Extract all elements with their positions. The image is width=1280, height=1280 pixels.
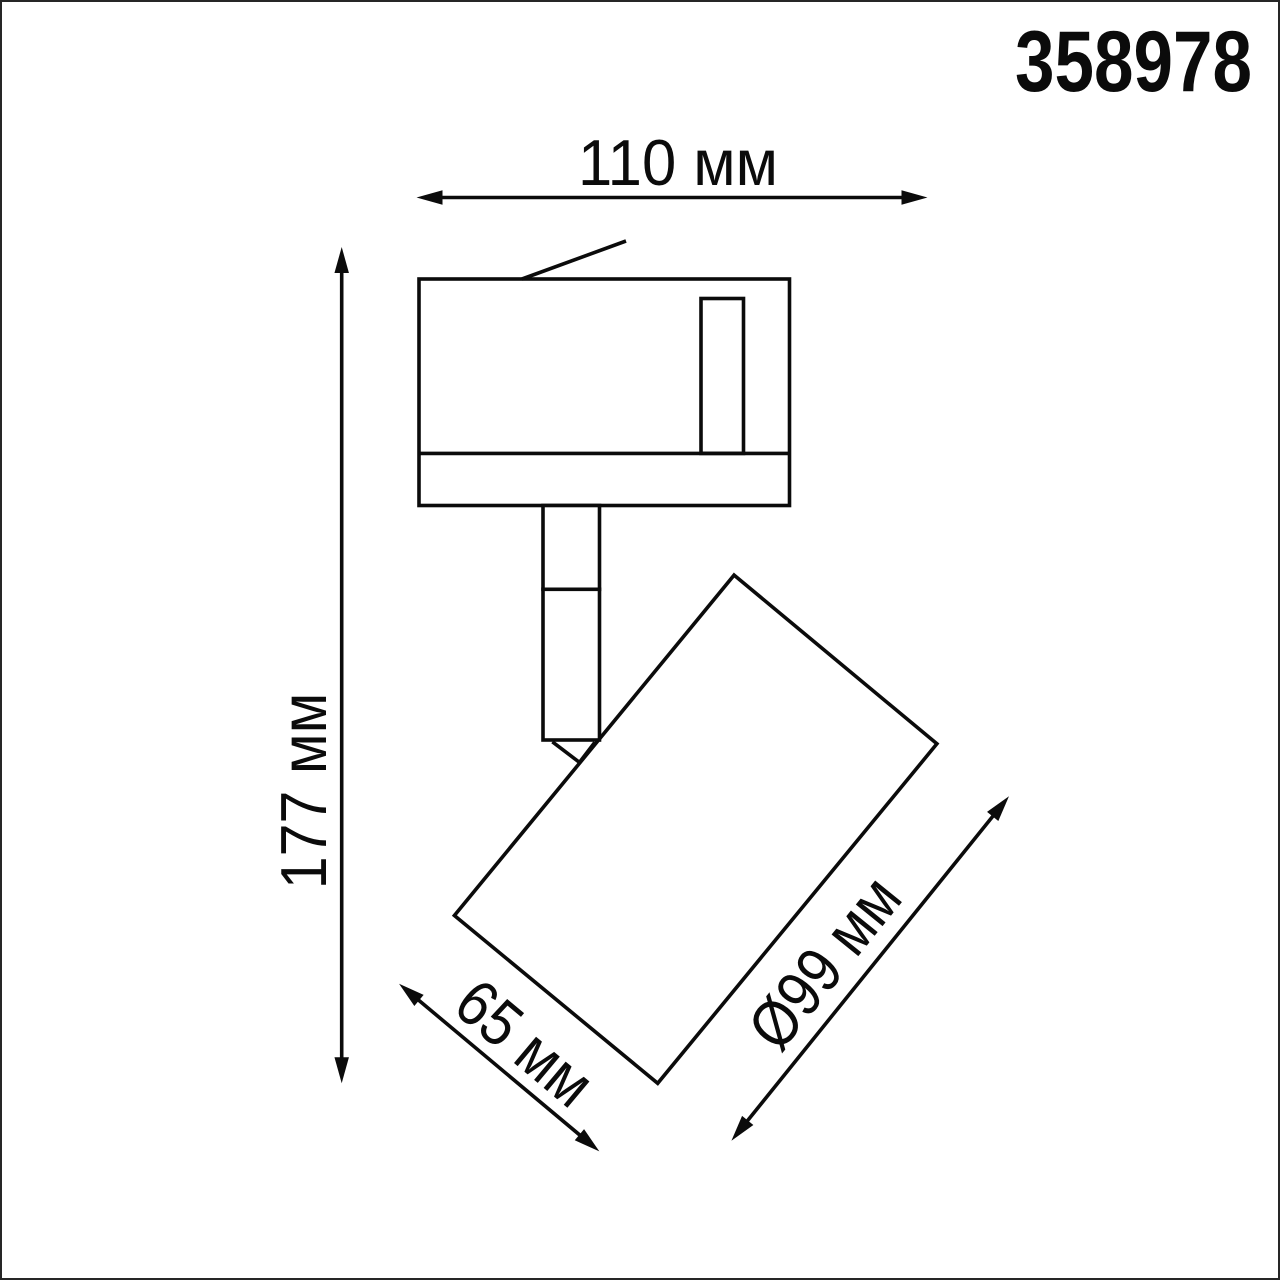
- svg-text:358978: 358978: [1015, 14, 1252, 110]
- svg-text:177 мм: 177 мм: [267, 693, 340, 890]
- svg-text:110 мм: 110 мм: [578, 126, 778, 199]
